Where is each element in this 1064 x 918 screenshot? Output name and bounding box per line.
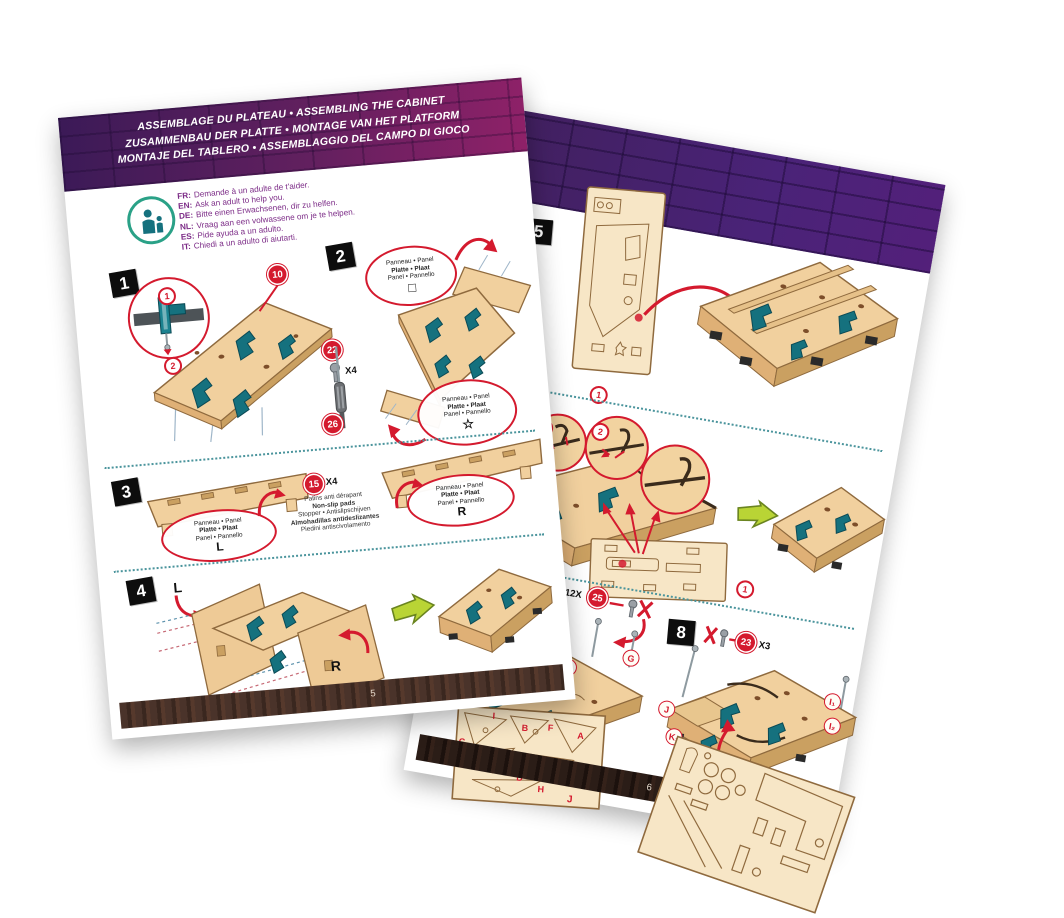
page-number: 6 [646,782,653,794]
part-10-balloon: 10 [268,265,288,285]
panel-1-marker: 1 [735,579,756,600]
closed-box-illustration [757,466,896,605]
sheet-letter: B [521,723,528,733]
red-curved-arrow-icon [335,625,371,658]
green-arrow-icon [389,593,437,627]
red-pointer-line [251,283,284,316]
panel-letter-R: R [457,505,467,518]
panel-letter-R: R [330,657,341,674]
pads-quantity-label: X4 [325,476,338,488]
screw-quantity-label: X4 [345,365,358,377]
assembled-box-illustration [428,554,563,673]
sheet-letter: F [547,723,553,733]
step-2-number: 2 [325,242,356,271]
adult-child-icon [125,194,177,246]
part-15-balloon: 15 [304,474,324,494]
star-symbol: ☆ [462,417,475,431]
manual-page-5: ASSEMBLAGE DU PLATEAU • ASSEMBLING THE C… [58,77,576,739]
sheet-letter: J [566,794,572,805]
adult-help-text: FR:Demande à un adulte de t'aider. EN:As… [177,177,357,253]
sheet-letter: H [537,784,544,794]
step-3-number: 3 [111,477,142,506]
header-banner: ASSEMBLAGE DU PLATEAU • ASSEMBLING THE C… [58,77,528,191]
page-number: 5 [370,688,376,699]
manual-photo-scene: 5 1 [0,0,1064,874]
screw-quantity-label: X3 [758,640,771,653]
panel-letter-L: L [216,540,224,553]
page-title: ASSEMBLAGE DU PLATEAU • ASSEMBLING THE C… [59,86,526,173]
sheet-letter: A [577,731,584,741]
